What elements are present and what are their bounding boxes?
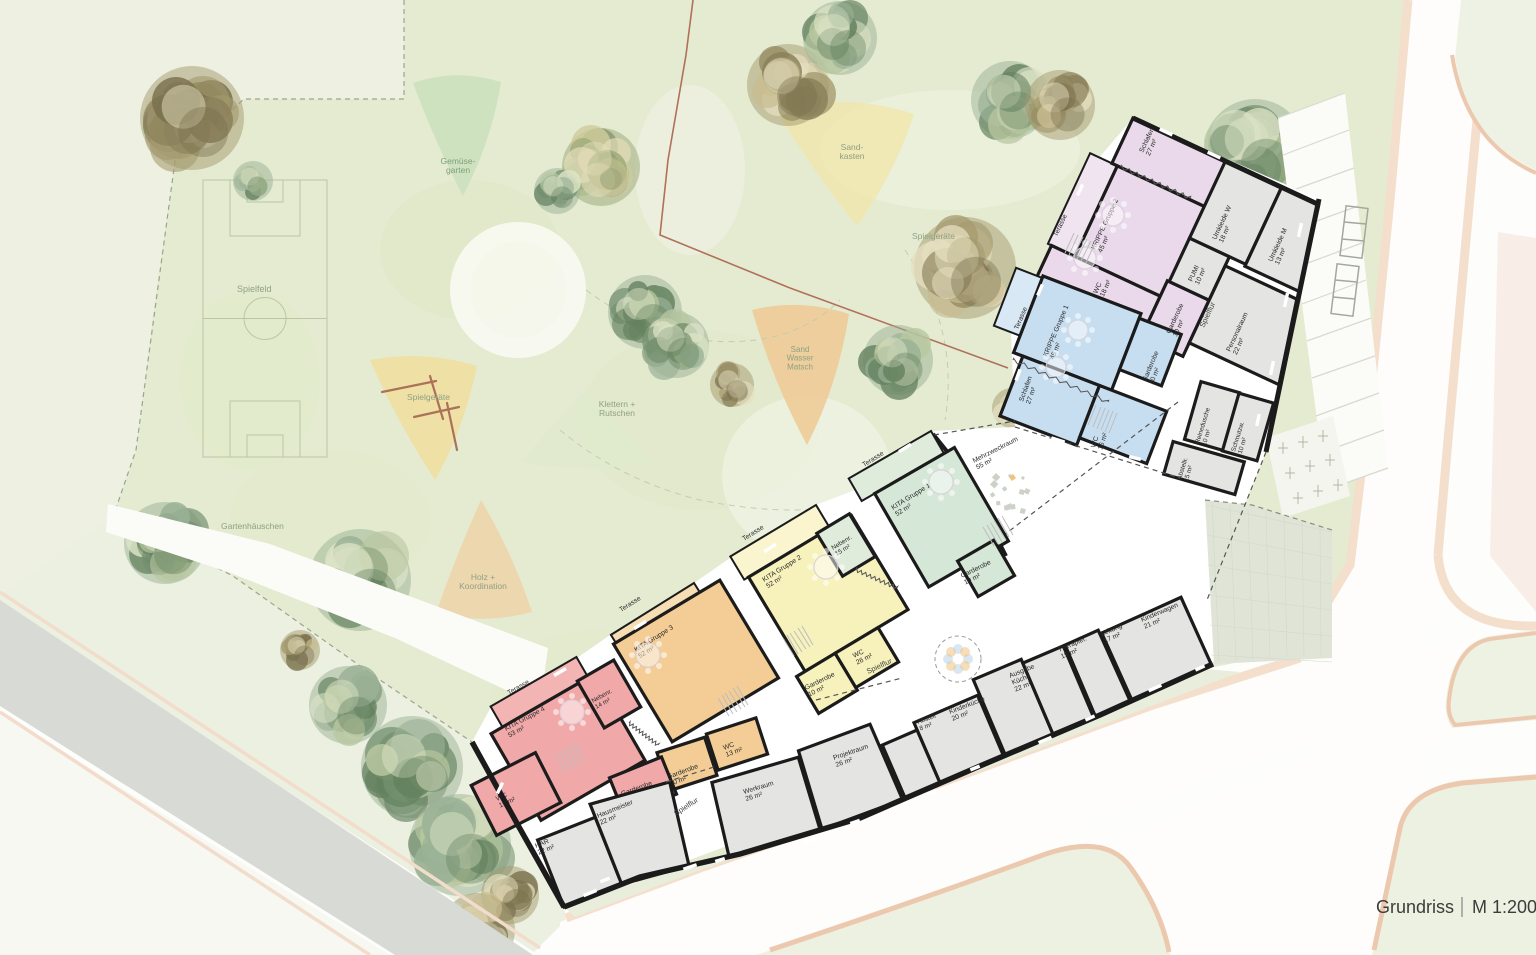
svg-text:Sand-kasten: Sand-kasten bbox=[839, 142, 864, 161]
svg-text:Gartenhäuschen: Gartenhäuschen bbox=[221, 521, 284, 531]
svg-text:Grundriss: Grundriss bbox=[1376, 897, 1454, 917]
svg-text:Spielgeräte: Spielgeräte bbox=[912, 231, 955, 241]
svg-text:Klettern +Rutschen: Klettern +Rutschen bbox=[599, 399, 636, 418]
svg-text:Spielfeld: Spielfeld bbox=[237, 284, 272, 294]
svg-text:Spielgeräte: Spielgeräte bbox=[407, 392, 450, 402]
svg-text:M 1:200: M 1:200 bbox=[1472, 897, 1536, 917]
